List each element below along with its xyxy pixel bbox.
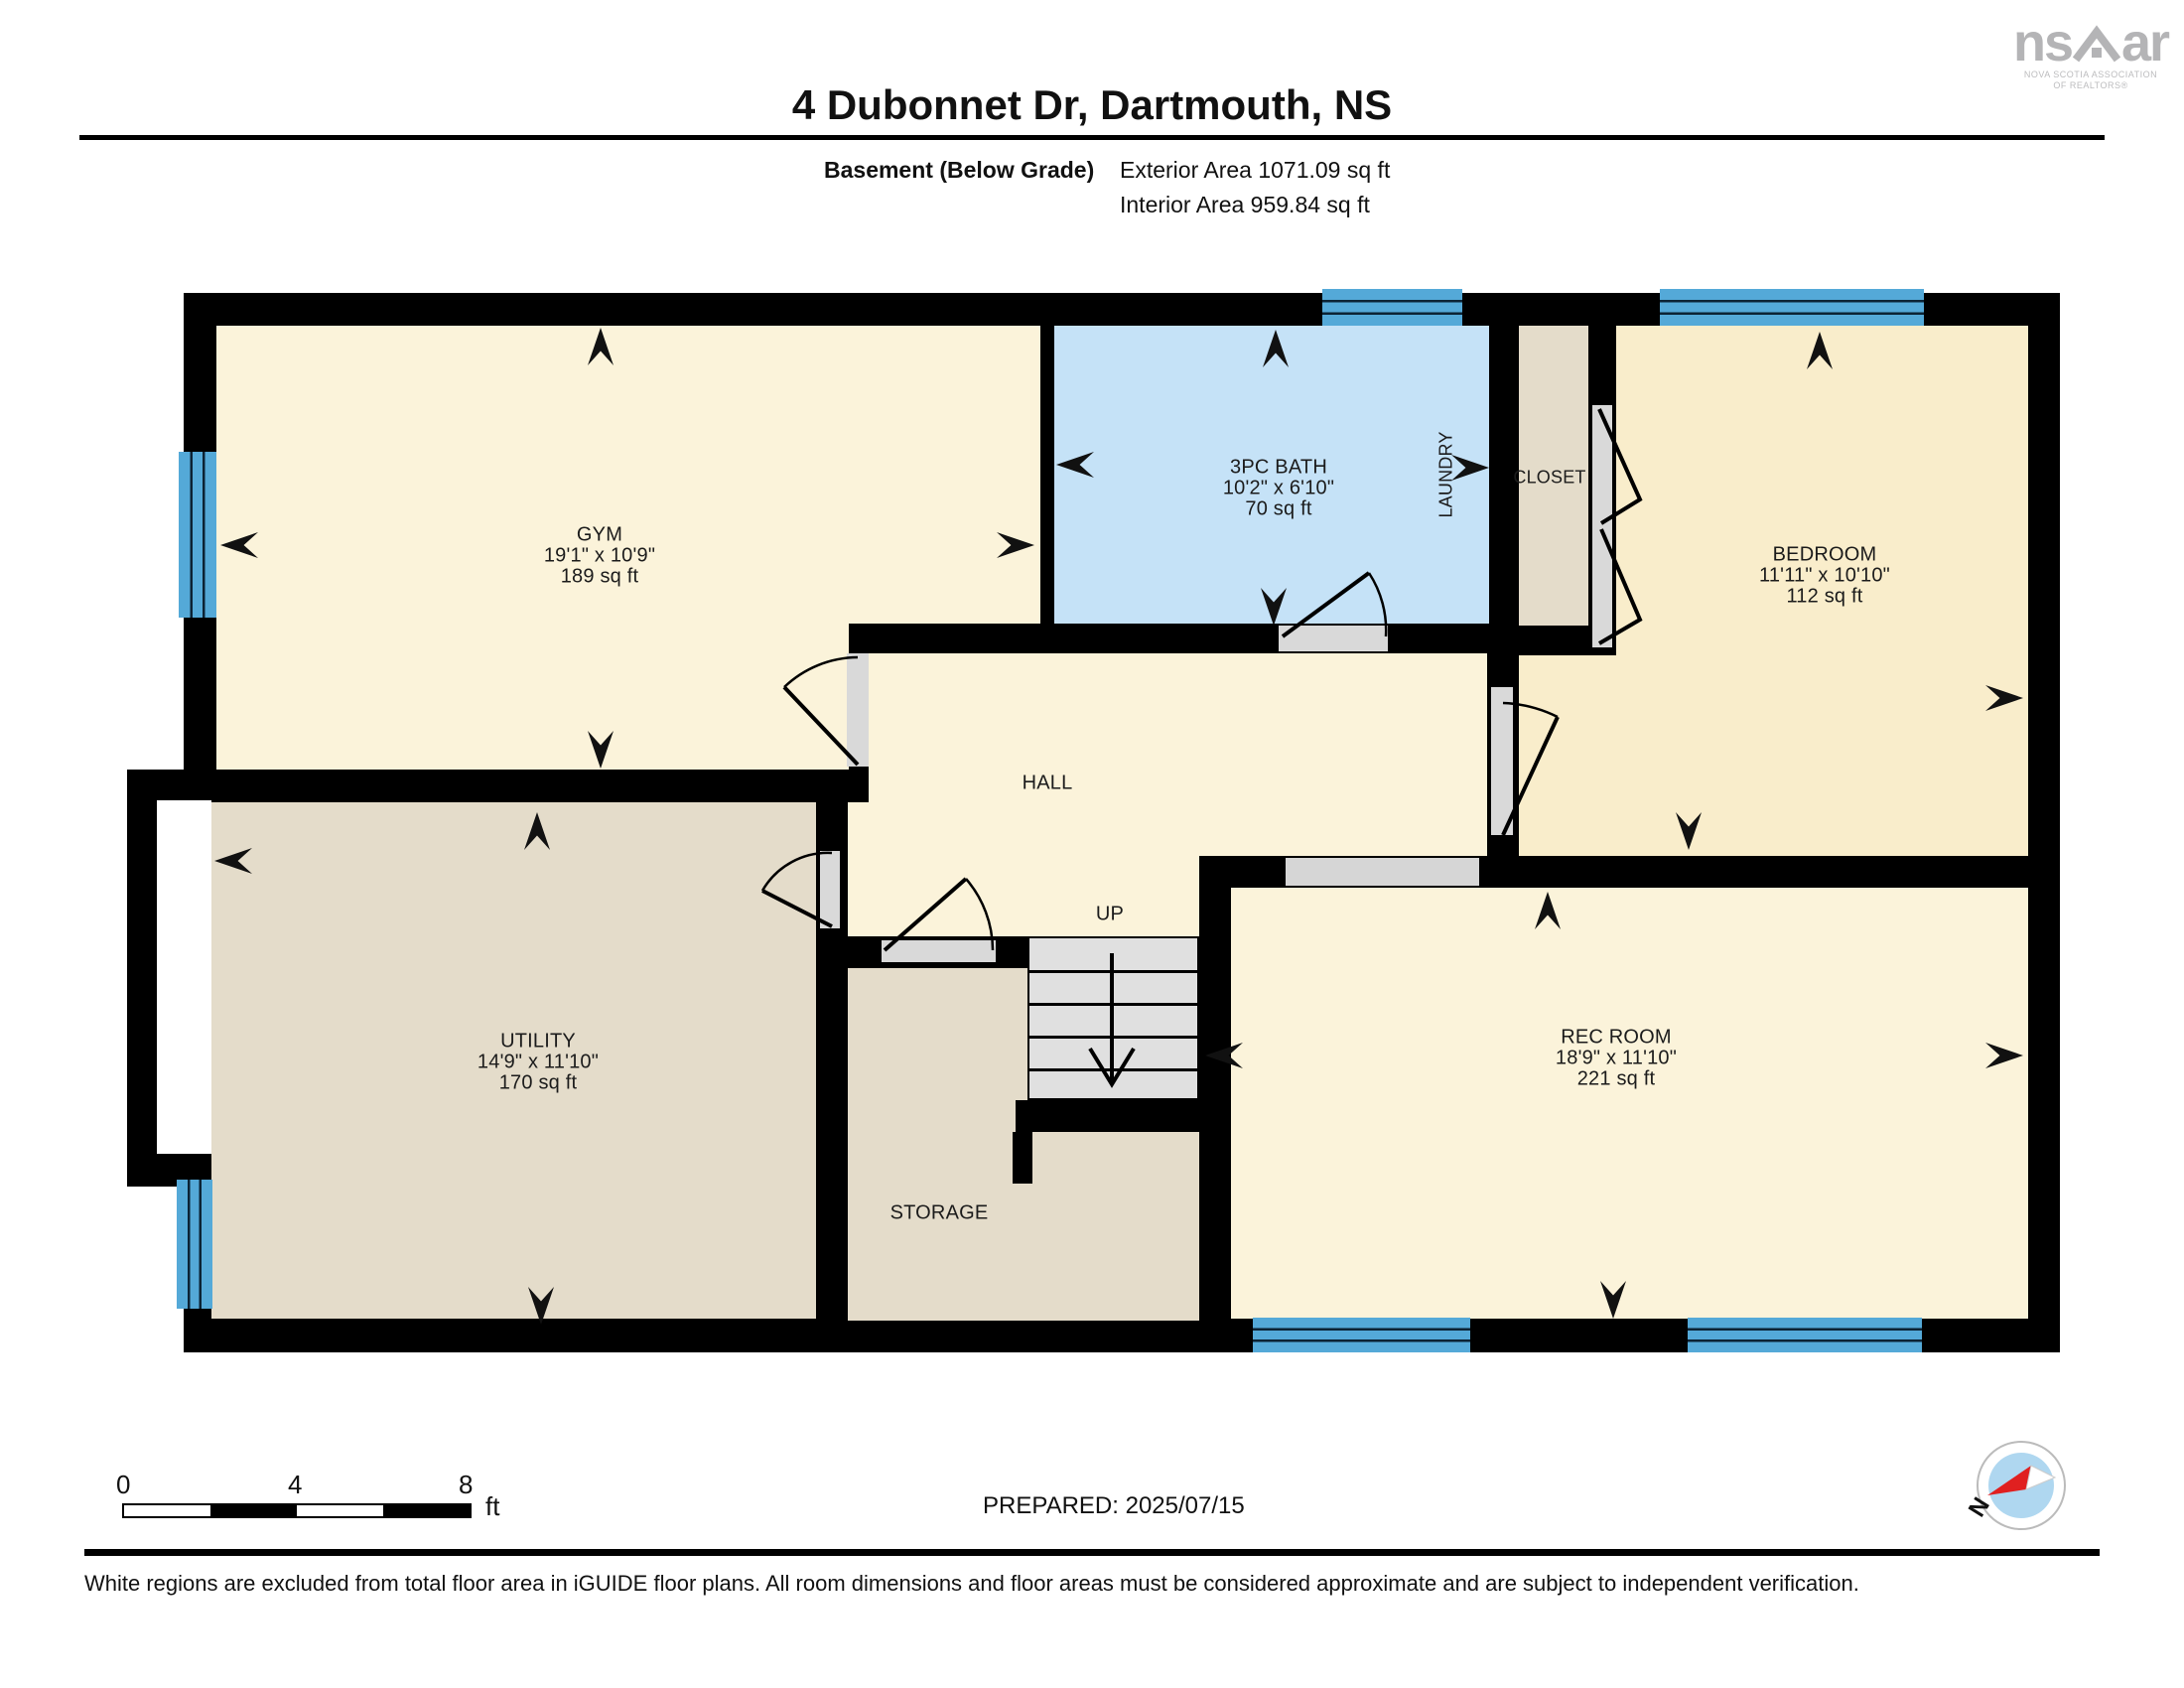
storage-label: STORAGE	[890, 1203, 989, 1224]
bath-dims: 10'2" x 6'10"	[1223, 479, 1334, 499]
bedroom-name: BEDROOM	[1759, 545, 1890, 566]
scale-unit: ft	[485, 1491, 499, 1522]
utility-label: UTILITY 14'9" x 11'10" 170 sq ft	[478, 1032, 599, 1094]
scale-segment	[297, 1505, 383, 1516]
floor-plan-page: ns ar NOVA SCOTIA ASSOCIATION OF REALTOR…	[0, 0, 2184, 1688]
bath-area: 70 sq ft	[1223, 499, 1334, 520]
gym-dims: 19'1" x 10'9"	[544, 546, 655, 567]
prepared-date: PREPARED: 2025/07/15	[983, 1492, 1245, 1520]
scale-segment	[124, 1505, 210, 1516]
rec-dims: 18'9" x 11'10"	[1556, 1049, 1677, 1069]
rec-room-label: REC ROOM 18'9" x 11'10" 221 sq ft	[1556, 1028, 1677, 1090]
laundry-label: LAUNDRY	[1436, 431, 1457, 517]
scale-tick-4: 4	[288, 1470, 302, 1500]
hall-label: HALL	[1023, 774, 1073, 794]
footer-divider	[84, 1549, 2100, 1556]
scale-tick-8: 8	[459, 1470, 473, 1500]
scale-tick-0: 0	[116, 1470, 130, 1500]
door-swing-overlay	[0, 0, 2184, 1688]
utility-dims: 14'9" x 11'10"	[478, 1053, 599, 1073]
disclaimer-text: White regions are excluded from total fl…	[84, 1571, 2129, 1597]
bath-label: 3PC BATH 10'2" x 6'10" 70 sq ft	[1223, 458, 1334, 520]
scale-bar	[122, 1503, 472, 1518]
utility-area: 170 sq ft	[478, 1073, 599, 1094]
bedroom-area: 112 sq ft	[1759, 587, 1890, 608]
scale-segment	[210, 1505, 297, 1516]
closet-label: CLOSET	[1513, 468, 1585, 489]
gym-area: 189 sq ft	[544, 567, 655, 588]
bedroom-dims: 11'11" x 10'10"	[1759, 566, 1890, 587]
stairs-up-label: UP	[1096, 905, 1124, 925]
rec-name: REC ROOM	[1556, 1028, 1677, 1049]
bath-name: 3PC BATH	[1223, 458, 1334, 479]
rec-area: 221 sq ft	[1556, 1069, 1677, 1090]
compass-icon: N	[1964, 1440, 2073, 1539]
gym-name: GYM	[544, 525, 655, 546]
scale-segment	[383, 1505, 470, 1516]
utility-name: UTILITY	[478, 1032, 599, 1053]
gym-label: GYM 19'1" x 10'9" 189 sq ft	[544, 525, 655, 588]
bedroom-label: BEDROOM 11'11" x 10'10" 112 sq ft	[1759, 545, 1890, 608]
